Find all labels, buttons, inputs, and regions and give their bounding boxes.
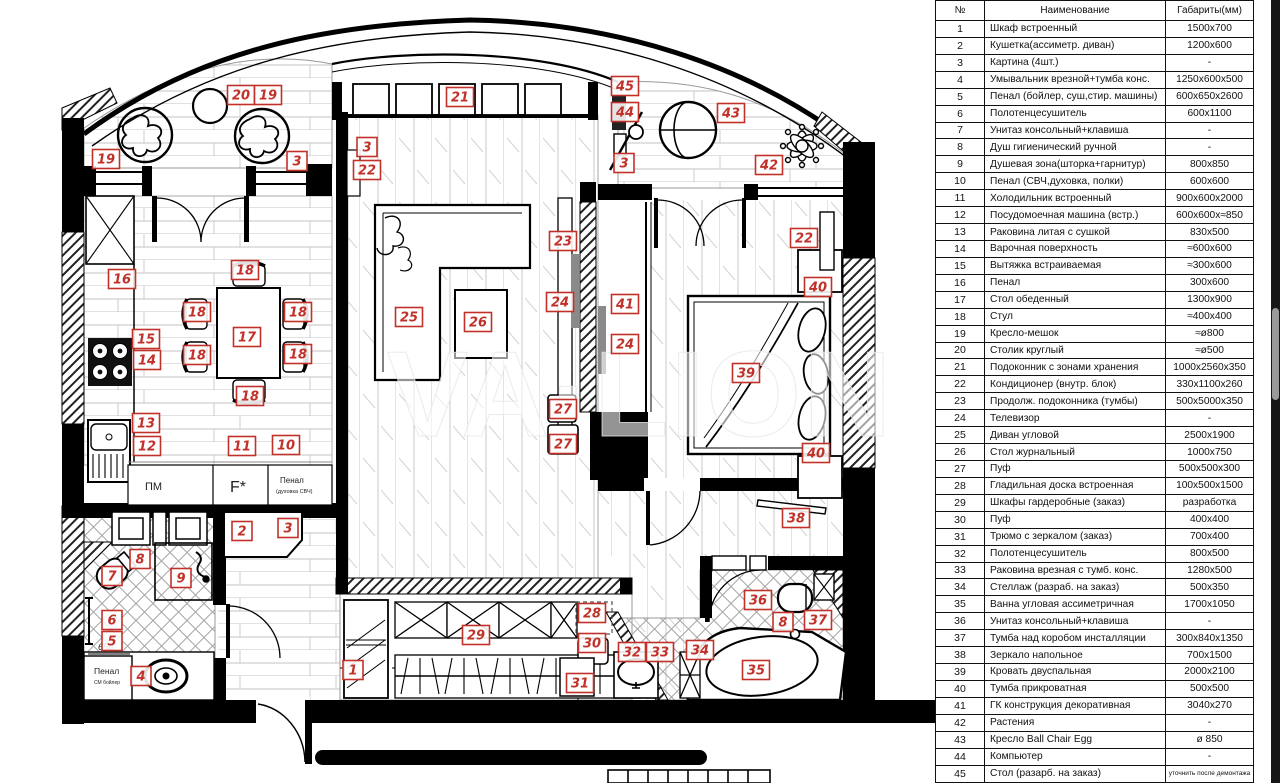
spec-row: 35Ванна угловая ассиметричная1700x1050 <box>936 596 1254 613</box>
plan-item-label-44: 44 <box>612 103 639 122</box>
spec-cell-num: 44 <box>936 748 985 765</box>
washer-dryer-column <box>112 512 207 545</box>
round-side-table <box>193 89 227 123</box>
spec-cell-dim: 300x600 <box>1166 274 1254 291</box>
spec-cell-num: 37 <box>936 630 985 647</box>
spec-cell-dim: ≈600x600 <box>1166 240 1254 257</box>
spec-cell-name: Полотенцесушитель <box>985 105 1166 122</box>
svg-text:38: 38 <box>787 512 805 527</box>
floor-plan-drawing: ПМ F* Пенал (духовка СВЧ) <box>0 0 935 783</box>
spec-cell-name: Телевизор <box>985 410 1166 427</box>
spec-cell-name: Пенал (бойлер, суш,стир. машины) <box>985 88 1166 105</box>
plan-item-label-3: 3 <box>614 154 634 173</box>
svg-text:3: 3 <box>362 141 371 156</box>
spec-row: 41ГК конструкция декоративная3040x270 <box>936 697 1254 714</box>
spec-row: 19Кресло-мешок≈ø800 <box>936 325 1254 342</box>
plan-item-label-9: 9 <box>171 569 191 588</box>
furniture-spec-table: № Наименование Габариты(мм) 1Шкаф встрое… <box>935 0 1253 783</box>
spec-cell-name: Пуф <box>985 460 1166 477</box>
plan-item-label-4: 4 <box>131 667 151 686</box>
spec-row: 5Пенал (бойлер, суш,стир. машины)600x650… <box>936 88 1254 105</box>
spec-cell-dim: 830x500 <box>1166 224 1254 241</box>
plan-item-label-14: 14 <box>134 351 161 370</box>
spec-row: 12Посудомоечная машина (встр.)600x600x≈8… <box>936 207 1254 224</box>
plan-item-label-35: 35 <box>743 661 770 680</box>
spec-cell-dim: 600x650x2600 <box>1166 88 1254 105</box>
spec-cell-dim: разработка <box>1166 494 1254 511</box>
spec-cell-name: Кондиционер (внутр. блок) <box>985 376 1166 393</box>
svg-text:18: 18 <box>236 264 254 279</box>
spec-cell-dim: ø 850 <box>1166 731 1254 748</box>
plan-item-label-18: 18 <box>232 261 259 280</box>
svg-text:28: 28 <box>583 607 601 622</box>
plan-item-label-24: 24 <box>612 335 639 354</box>
svg-text:19: 19 <box>259 89 277 104</box>
plan-item-label-21: 21 <box>447 88 474 107</box>
spec-row: 30Пуф400x400 <box>936 511 1254 528</box>
plan-item-label-1: 1 <box>343 661 363 680</box>
spec-cell-num: 28 <box>936 477 985 494</box>
spec-cell-num: 1 <box>936 21 985 38</box>
spec-cell-name: Пенал <box>985 274 1166 291</box>
ball-chair-egg <box>660 102 716 158</box>
spec-cell-dim: 700x400 <box>1166 528 1254 545</box>
plan-item-label-18: 18 <box>285 345 312 364</box>
entrance-door-leaf <box>305 700 312 764</box>
plan-item-label-37: 37 <box>805 611 832 630</box>
plan-item-label-24: 24 <box>547 293 574 312</box>
svg-text:14: 14 <box>138 354 156 369</box>
plan-item-label-17: 17 <box>234 328 261 347</box>
plan-item-label-34: 34 <box>687 641 714 660</box>
spec-cell-name: Шкаф встроенный <box>985 21 1166 38</box>
svg-text:16: 16 <box>113 273 131 288</box>
spec-cell-name: Унитаз консольный+клавиша <box>985 122 1166 139</box>
spec-row: 32Полотенцесушитель800x500 <box>936 545 1254 562</box>
spec-row: 45Стол (разарб. на заказ)уточнить после … <box>936 765 1254 782</box>
svg-text:12: 12 <box>138 440 156 455</box>
spec-cell-num: 32 <box>936 545 985 562</box>
spec-cell-dim: 1300x900 <box>1166 291 1254 308</box>
spec-cell-name: Шкафы гардеробные (заказ) <box>985 494 1166 511</box>
plan-item-label-29: 29 <box>463 626 490 645</box>
plan-item-label-7: 7 <box>102 567 122 586</box>
spec-cell-name: Кушетка(ассиметр. диван) <box>985 37 1166 54</box>
spec-cell-name: Компьютер <box>985 748 1166 765</box>
plan-item-label-23: 23 <box>550 232 577 251</box>
spec-cell-dim: - <box>1166 54 1254 71</box>
spec-cell-num: 29 <box>936 494 985 511</box>
spec-cell-dim: 500x350 <box>1166 579 1254 596</box>
spec-cell-dim: 330x1100x260 <box>1166 376 1254 393</box>
spec-cell-name: Холодильник встроенный <box>985 190 1166 207</box>
spec-cell-name: Ванна угловая ассиметричная <box>985 596 1166 613</box>
scrollbar-thumb[interactable] <box>1272 308 1279 400</box>
spec-row: 38Зеркало напольное700x1500 <box>936 647 1254 664</box>
plan-item-label-27: 27 <box>550 400 577 419</box>
spec-cell-dim: 500x500 <box>1166 680 1254 697</box>
svg-text:25: 25 <box>400 311 418 326</box>
spec-cell-name: Кровать двуспальная <box>985 664 1166 681</box>
spec-cell-num: 35 <box>936 596 985 613</box>
spec-cell-num: 40 <box>936 680 985 697</box>
spec-cell-dim: - <box>1166 748 1254 765</box>
wardrobe-top-wall <box>336 578 632 594</box>
spec-row: 28Гладильная доска встроенная100x500x150… <box>936 477 1254 494</box>
spec-row: 8Душ гигиенический ручной- <box>936 139 1254 156</box>
watermark: VA·LION <box>387 326 893 462</box>
spec-cell-dim: - <box>1166 410 1254 427</box>
spec-row: 43Кресло Ball Chair Eggø 850 <box>936 731 1254 748</box>
spec-cell-name: Трюмо с зеркалом (заказ) <box>985 528 1166 545</box>
spec-row: 22Кондиционер (внутр. блок)330x1100x260 <box>936 376 1254 393</box>
spec-cell-dim: уточнить после демонтажа <box>1166 765 1254 782</box>
spec-cell-num: 43 <box>936 731 985 748</box>
spec-row: 36Унитаз консольный+клавиша- <box>936 613 1254 630</box>
spec-row: 20Столик круглый≈ø500 <box>936 342 1254 359</box>
svg-text:18: 18 <box>188 306 206 321</box>
svg-text:4: 4 <box>135 670 145 685</box>
spec-cell-num: 31 <box>936 528 985 545</box>
svg-text:33: 33 <box>651 646 669 661</box>
plan-item-label-11: 11 <box>229 437 256 456</box>
spec-row: 17Стол обеденный1300x900 <box>936 291 1254 308</box>
spec-cell-dim: 1500x700 <box>1166 21 1254 38</box>
spec-header-row: № Наименование Габариты(мм) <box>936 1 1254 21</box>
spec-cell-name: Тумба над коробом инсталляции <box>985 630 1166 647</box>
svg-text:29: 29 <box>467 629 485 644</box>
spec-cell-dim: 2500x1900 <box>1166 427 1254 444</box>
spec-cell-name: Растения <box>985 714 1166 731</box>
svg-text:21: 21 <box>451 91 469 106</box>
svg-text:24: 24 <box>551 296 569 311</box>
spec-row: 3Картина (4шт.)- <box>936 54 1254 71</box>
kitchen-tall-cabinet <box>86 196 134 264</box>
svg-text:41: 41 <box>615 298 634 313</box>
spec-cell-dim: 500x500x300 <box>1166 460 1254 477</box>
plan-item-label-3: 3 <box>278 519 298 538</box>
plan-item-label-25: 25 <box>396 308 423 327</box>
spec-cell-name: Столик круглый <box>985 342 1166 359</box>
spec-cell-num: 12 <box>936 207 985 224</box>
spec-cell-num: 36 <box>936 613 985 630</box>
spec-cell-dim: 1280x500 <box>1166 562 1254 579</box>
spec-cell-name: Стул <box>985 308 1166 325</box>
spec-cell-name: Раковина литая с сушкой <box>985 224 1166 241</box>
spec-cell-num: 39 <box>936 664 985 681</box>
spec-cell-name: Полотенцесушитель <box>985 545 1166 562</box>
spec-row: 37Тумба над коробом инсталляции300x840x1… <box>936 630 1254 647</box>
svg-text:34: 34 <box>691 644 709 659</box>
spec-cell-dim: 100x500x1500 <box>1166 477 1254 494</box>
spec-cell-num: 20 <box>936 342 985 359</box>
plan-item-label-41: 41 <box>612 295 639 314</box>
spec-cell-dim: 1250x600x500 <box>1166 71 1254 88</box>
plant <box>781 125 824 168</box>
svg-text:37: 37 <box>809 614 828 629</box>
spec-row: 9Душевая зона(шторка+гарнитур)800x850 <box>936 156 1254 173</box>
svg-text:36: 36 <box>749 594 767 609</box>
spec-cell-dim: 1200x600 <box>1166 37 1254 54</box>
svg-text:20: 20 <box>232 89 250 104</box>
svg-text:5: 5 <box>107 635 116 650</box>
plan-item-label-38: 38 <box>783 509 810 528</box>
spec-row: 14Варочная поверхность≈600x600 <box>936 240 1254 257</box>
spec-cell-dim: 1700x1050 <box>1166 596 1254 613</box>
svg-text:15: 15 <box>137 333 155 348</box>
spec-cell-dim: 800x500 <box>1166 545 1254 562</box>
wardrobe-mirror-cabinet <box>344 600 388 698</box>
svg-text:18: 18 <box>241 390 259 405</box>
spec-header-name: Наименование <box>985 1 1166 21</box>
plan-item-label-30: 30 <box>579 634 606 653</box>
spec-cell-name: Кресло-мешок <box>985 325 1166 342</box>
svg-text:6: 6 <box>107 614 116 629</box>
spec-cell-num: 2 <box>936 37 985 54</box>
svg-text:27: 27 <box>554 438 573 453</box>
svg-text:30: 30 <box>583 637 601 652</box>
plan-item-label-3: 3 <box>287 152 307 171</box>
plan-item-label-18: 18 <box>184 303 211 322</box>
svg-text:27: 27 <box>554 403 573 418</box>
spec-cell-name: Стол обеденный <box>985 291 1166 308</box>
plan-item-label-31: 31 <box>567 674 594 693</box>
plan-item-label-42: 42 <box>756 156 783 175</box>
svg-text:1: 1 <box>348 664 357 679</box>
spec-cell-name: Картина (4шт.) <box>985 54 1166 71</box>
plan-item-label-6: 6 <box>102 611 122 630</box>
spec-cell-name: Стеллаж (разраб. на заказ) <box>985 579 1166 596</box>
svg-text:40: 40 <box>808 281 827 296</box>
spec-row: 26Стол журнальный1000x750 <box>936 444 1254 461</box>
plan-item-label-22: 22 <box>354 161 381 180</box>
plan-item-label-19: 19 <box>93 150 120 169</box>
plan-item-label-8: 8 <box>130 550 150 569</box>
svg-text:13: 13 <box>137 417 155 432</box>
spec-cell-dim: - <box>1166 714 1254 731</box>
spec-cell-num: 38 <box>936 647 985 664</box>
svg-text:18: 18 <box>289 306 307 321</box>
plan-item-label-16: 16 <box>109 270 136 289</box>
plan-item-label-13: 13 <box>133 414 160 433</box>
spec-cell-num: 15 <box>936 257 985 274</box>
spec-header-num: № <box>936 1 985 21</box>
svg-text:8: 8 <box>778 616 787 631</box>
bottom-stamp-table <box>608 770 770 783</box>
spec-cell-dim: 600x600 <box>1166 173 1254 190</box>
spec-cell-dim: 500x5000x350 <box>1166 393 1254 410</box>
kitchen-living-wall <box>336 112 348 578</box>
dimension-bar <box>315 750 707 765</box>
spec-row: 44Компьютер- <box>936 748 1254 765</box>
spec-cell-num: 16 <box>936 274 985 291</box>
floor-plan-page: ПМ F* Пенал (духовка СВЧ) <box>0 0 1280 783</box>
spec-cell-dim: - <box>1166 613 1254 630</box>
kitchen-sink <box>88 420 130 482</box>
svg-text:19: 19 <box>97 153 115 168</box>
spec-cell-name: Душевая зона(шторка+гарнитур) <box>985 156 1166 173</box>
spec-cell-dim: 3040x270 <box>1166 697 1254 714</box>
spec-cell-num: 5 <box>936 88 985 105</box>
spec-cell-num: 26 <box>936 444 985 461</box>
kitchen-penal-sublabel: (духовка СВЧ) <box>276 489 313 495</box>
svg-text:3: 3 <box>283 522 292 537</box>
plan-item-label-20: 20 <box>228 86 255 105</box>
svg-text:32: 32 <box>623 646 641 661</box>
spec-cell-name: ГК конструкция декоративная <box>985 697 1166 714</box>
spec-cell-num: 17 <box>936 291 985 308</box>
svg-text:40: 40 <box>806 447 825 462</box>
spec-row: 21Подоконник с зонами хранения1000x2560x… <box>936 359 1254 376</box>
ac-unit-bedroom <box>820 212 834 270</box>
spec-cell-name: Зеркало напольное <box>985 647 1166 664</box>
spec-cell-num: 11 <box>936 190 985 207</box>
plan-item-label-27: 27 <box>550 435 577 454</box>
tv-living <box>571 254 579 328</box>
svg-text:35: 35 <box>747 664 765 679</box>
plan-item-label-40: 40 <box>805 278 832 297</box>
spec-row: 10Пенал (СВЧ,духовка, полки)600x600 <box>936 173 1254 190</box>
spec-cell-name: Тумба прикроватная <box>985 680 1166 697</box>
spec-cell-num: 27 <box>936 460 985 477</box>
spec-row: 2Кушетка(ассиметр. диван)1200x600 <box>936 37 1254 54</box>
plan-item-label-26: 26 <box>465 313 492 332</box>
spec-row: 6Полотенцесушитель600x1100 <box>936 105 1254 122</box>
svg-text:8: 8 <box>135 553 144 568</box>
spec-cell-num: 4 <box>936 71 985 88</box>
spec-row: 23Продолж. подоконника (тумбы)500x5000x3… <box>936 393 1254 410</box>
spec-cell-num: 18 <box>936 308 985 325</box>
spec-cell-num: 8 <box>936 139 985 156</box>
plan-item-label-19: 19 <box>255 86 282 105</box>
spec-cell-name: Раковина врезная с тумб. конс. <box>985 562 1166 579</box>
spec-cell-num: 25 <box>936 427 985 444</box>
spec-row: 33Раковина врезная с тумб. конс.1280x500 <box>936 562 1254 579</box>
svg-text:10: 10 <box>277 439 295 454</box>
cooktop <box>88 338 132 386</box>
spec-cell-name: Варочная поверхность <box>985 240 1166 257</box>
spec-row: 15Вытяжка встраиваемая≈300x600 <box>936 257 1254 274</box>
svg-text:45: 45 <box>615 80 634 95</box>
bath-penal-sublabel: СМ бойлер <box>94 679 120 686</box>
spec-cell-dim: ≈ø800 <box>1166 325 1254 342</box>
plan-item-label-36: 36 <box>745 591 772 610</box>
svg-text:9: 9 <box>176 572 185 587</box>
plan-item-label-45: 45 <box>612 77 639 96</box>
plan-item-label-22: 22 <box>791 229 818 248</box>
spec-cell-dim: 2000x2100 <box>1166 664 1254 681</box>
spec-row: 31Трюмо с зеркалом (заказ)700x400 <box>936 528 1254 545</box>
spec-cell-num: 33 <box>936 562 985 579</box>
spec-row: 40Тумба прикроватная500x500 <box>936 680 1254 697</box>
plan-item-label-15: 15 <box>133 330 160 349</box>
spec-cell-name: Пенал (СВЧ,духовка, полки) <box>985 173 1166 190</box>
spec-row: 1Шкаф встроенный1500x700 <box>936 21 1254 38</box>
fridge-label: F* <box>230 479 246 496</box>
spec-cell-dim: 1000x2560x350 <box>1166 359 1254 376</box>
spec-cell-num: 6 <box>936 105 985 122</box>
plan-item-label-18: 18 <box>237 387 264 406</box>
svg-text:18: 18 <box>289 348 307 363</box>
spec-cell-dim: ≈300x600 <box>1166 257 1254 274</box>
svg-text:22: 22 <box>795 232 813 247</box>
spec-cell-num: 13 <box>936 224 985 241</box>
spec-cell-num: 10 <box>936 173 985 190</box>
plan-item-label-43: 43 <box>718 104 745 123</box>
svg-text:43: 43 <box>721 107 740 122</box>
spec-cell-name: Стол журнальный <box>985 444 1166 461</box>
spec-cell-dim: 900x600x2000 <box>1166 190 1254 207</box>
svg-text:31: 31 <box>571 677 589 692</box>
spec-cell-dim: - <box>1166 122 1254 139</box>
plan-item-label-10: 10 <box>273 436 300 455</box>
spec-cell-num: 9 <box>936 156 985 173</box>
svg-text:26: 26 <box>469 316 487 331</box>
plan-item-label-32: 32 <box>619 643 646 662</box>
spec-cell-dim: 700x1500 <box>1166 647 1254 664</box>
spec-cell-dim: 400x400 <box>1166 511 1254 528</box>
spec-cell-num: 14 <box>936 240 985 257</box>
spec-cell-name: Гладильная доска встроенная <box>985 477 1166 494</box>
spec-cell-name: Посудомоечная машина (встр.) <box>985 207 1166 224</box>
spec-cell-dim: 800x850 <box>1166 156 1254 173</box>
spec-cell-name: Кресло Ball Chair Egg <box>985 731 1166 748</box>
spec-row: 34Стеллаж (разраб. на заказ)500x350 <box>936 579 1254 596</box>
spec-row: 24Телевизор- <box>936 410 1254 427</box>
spec-cell-name: Продолж. подоконника (тумбы) <box>985 393 1166 410</box>
spec-row: 13Раковина литая с сушкой830x500 <box>936 224 1254 241</box>
svg-text:18: 18 <box>188 349 206 364</box>
spec-row: 25Диван угловой2500x1900 <box>936 427 1254 444</box>
spec-row: 27Пуф500x500x300 <box>936 460 1254 477</box>
svg-text:23: 23 <box>554 235 572 250</box>
scrollbar-track[interactable] <box>1271 0 1280 783</box>
plan-item-label-8: 8 <box>773 613 793 632</box>
plan-item-label-39: 39 <box>733 364 760 383</box>
spec-row: 29Шкафы гардеробные (заказ)разработка <box>936 494 1254 511</box>
spec-cell-name: Душ гигиенический ручной <box>985 139 1166 156</box>
kitchen-penal-label: Пенал <box>280 476 304 485</box>
spec-row: 39Кровать двуспальная2000x2100 <box>936 664 1254 681</box>
plan-item-label-18: 18 <box>184 346 211 365</box>
spec-cell-name: Стол (разарб. на заказ) <box>985 765 1166 782</box>
plan-item-label-2: 2 <box>232 522 252 541</box>
svg-text:22: 22 <box>358 164 376 179</box>
plan-item-label-3: 3 <box>357 138 377 157</box>
plan-item-label-5: 5 <box>102 632 122 651</box>
spec-cell-num: 45 <box>936 765 985 782</box>
plan-item-label-12: 12 <box>134 437 161 456</box>
spec-row: 18Стул≈400x400 <box>936 308 1254 325</box>
svg-text:7: 7 <box>107 570 117 585</box>
spec-row: 42Растения- <box>936 714 1254 731</box>
spec-cell-dim: 300x840x1350 <box>1166 630 1254 647</box>
spec-row: 16Пенал300x600 <box>936 274 1254 291</box>
spec-cell-num: 34 <box>936 579 985 596</box>
spec-cell-dim: 600x1100 <box>1166 105 1254 122</box>
spec-row: 7Унитаз консольный+клавиша- <box>936 122 1254 139</box>
spec-cell-name: Вытяжка встраиваемая <box>985 257 1166 274</box>
spec-cell-num: 22 <box>936 376 985 393</box>
plan-item-label-28: 28 <box>579 604 606 623</box>
spec-cell-num: 24 <box>936 410 985 427</box>
spec-cell-num: 23 <box>936 393 985 410</box>
spec-cell-dim: 600x600x≈850 <box>1166 207 1254 224</box>
spec-cell-num: 30 <box>936 511 985 528</box>
bath-penal-label: Пенал <box>94 666 119 676</box>
spec-cell-num: 3 <box>936 54 985 71</box>
svg-text:2: 2 <box>237 525 246 540</box>
